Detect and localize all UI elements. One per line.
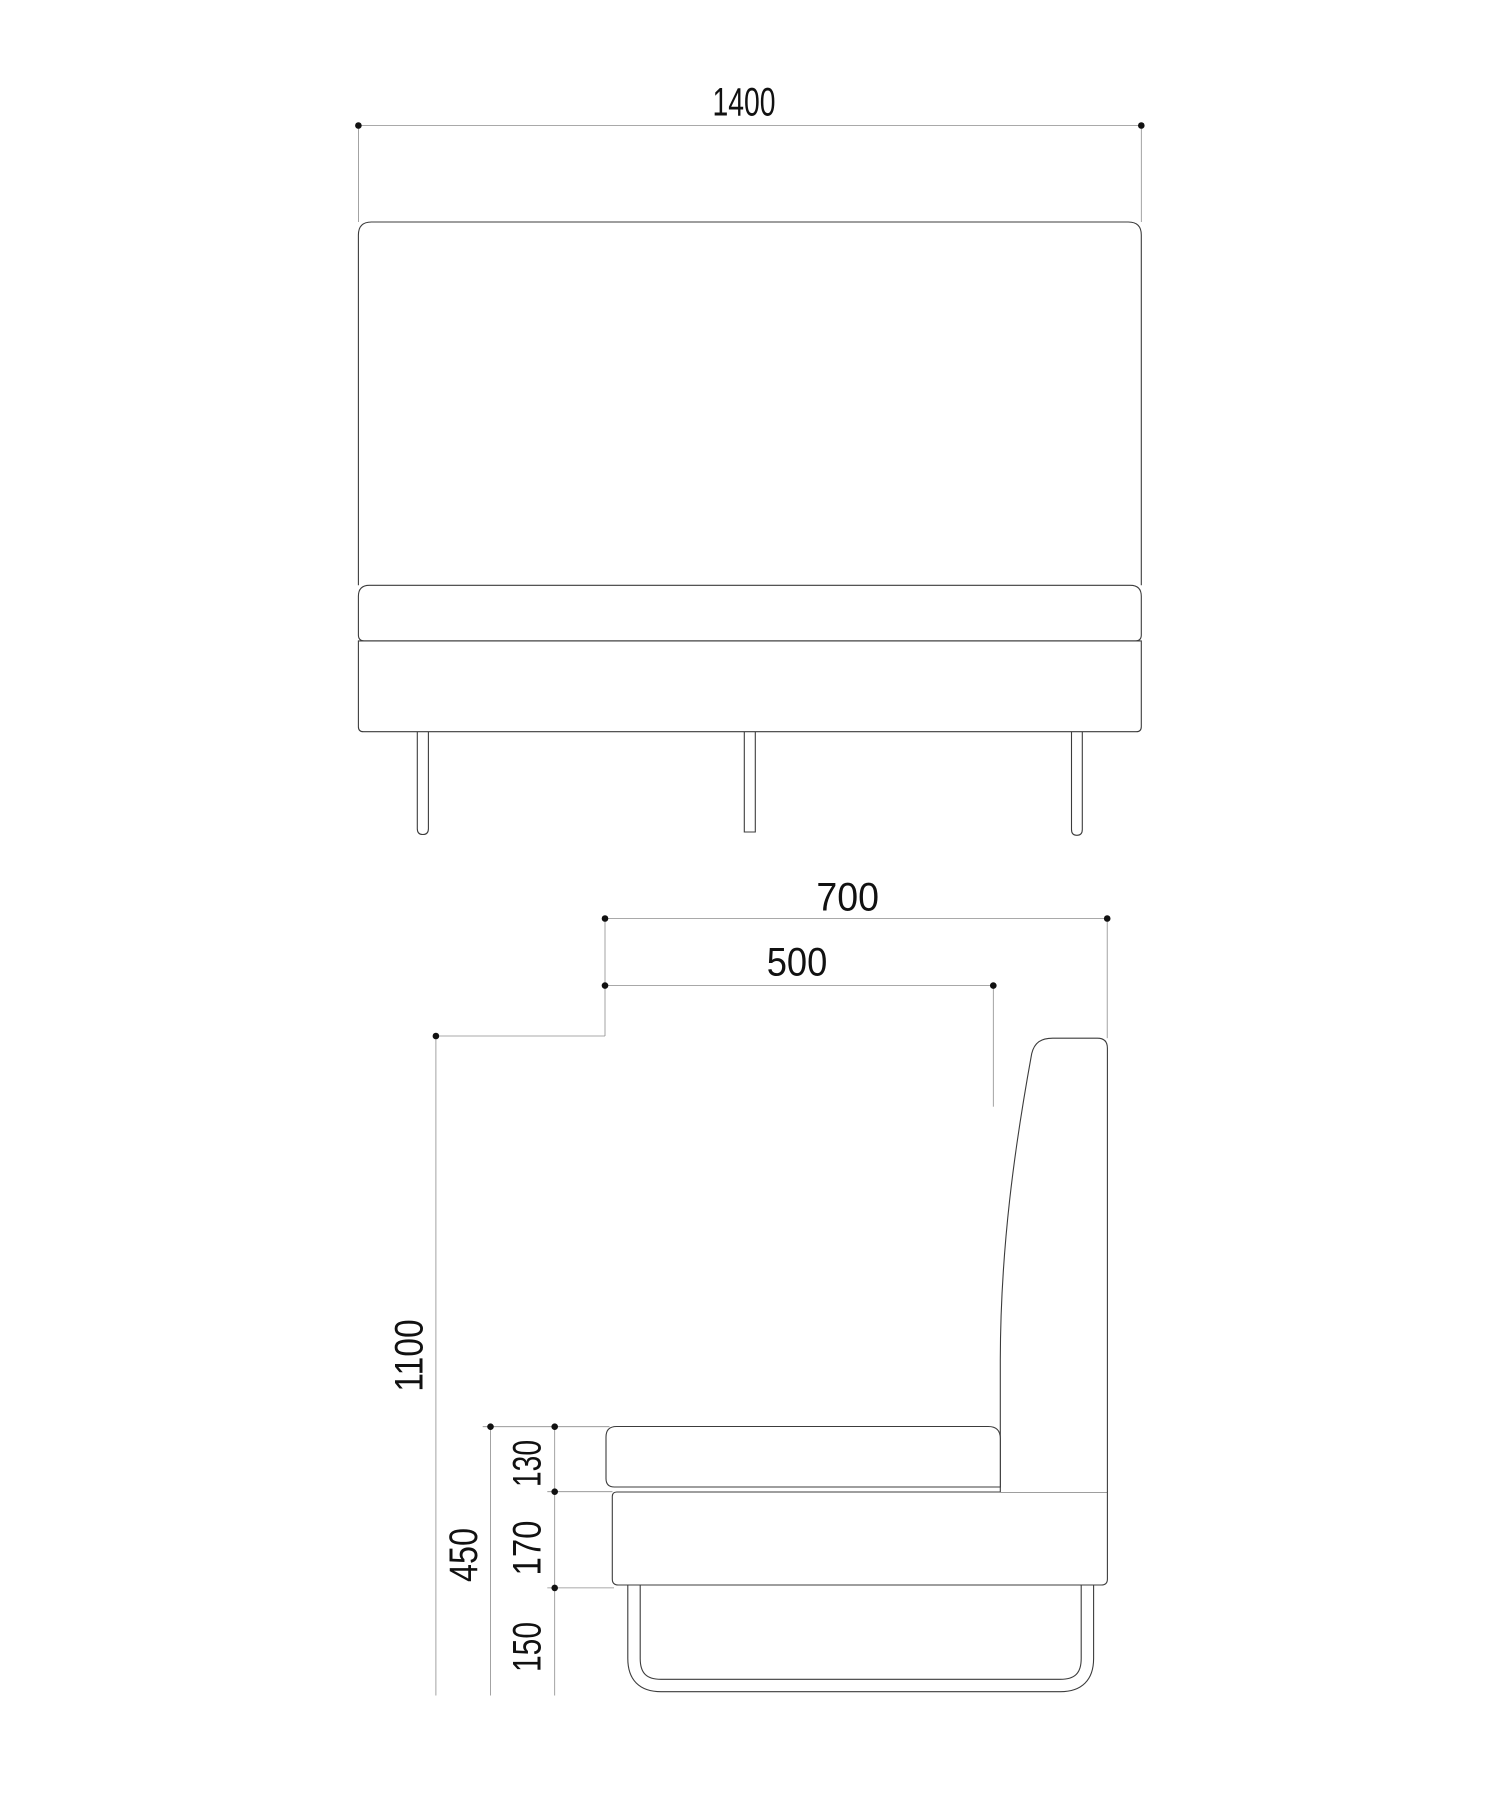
svg-text:150: 150 bbox=[506, 1622, 550, 1672]
svg-text:130: 130 bbox=[506, 1440, 550, 1487]
svg-text:1400: 1400 bbox=[713, 80, 776, 124]
svg-text:700: 700 bbox=[816, 875, 879, 919]
svg-text:170: 170 bbox=[506, 1521, 550, 1576]
svg-text:450: 450 bbox=[442, 1528, 486, 1582]
svg-text:500: 500 bbox=[767, 941, 828, 985]
svg-text:1100: 1100 bbox=[388, 1319, 432, 1392]
